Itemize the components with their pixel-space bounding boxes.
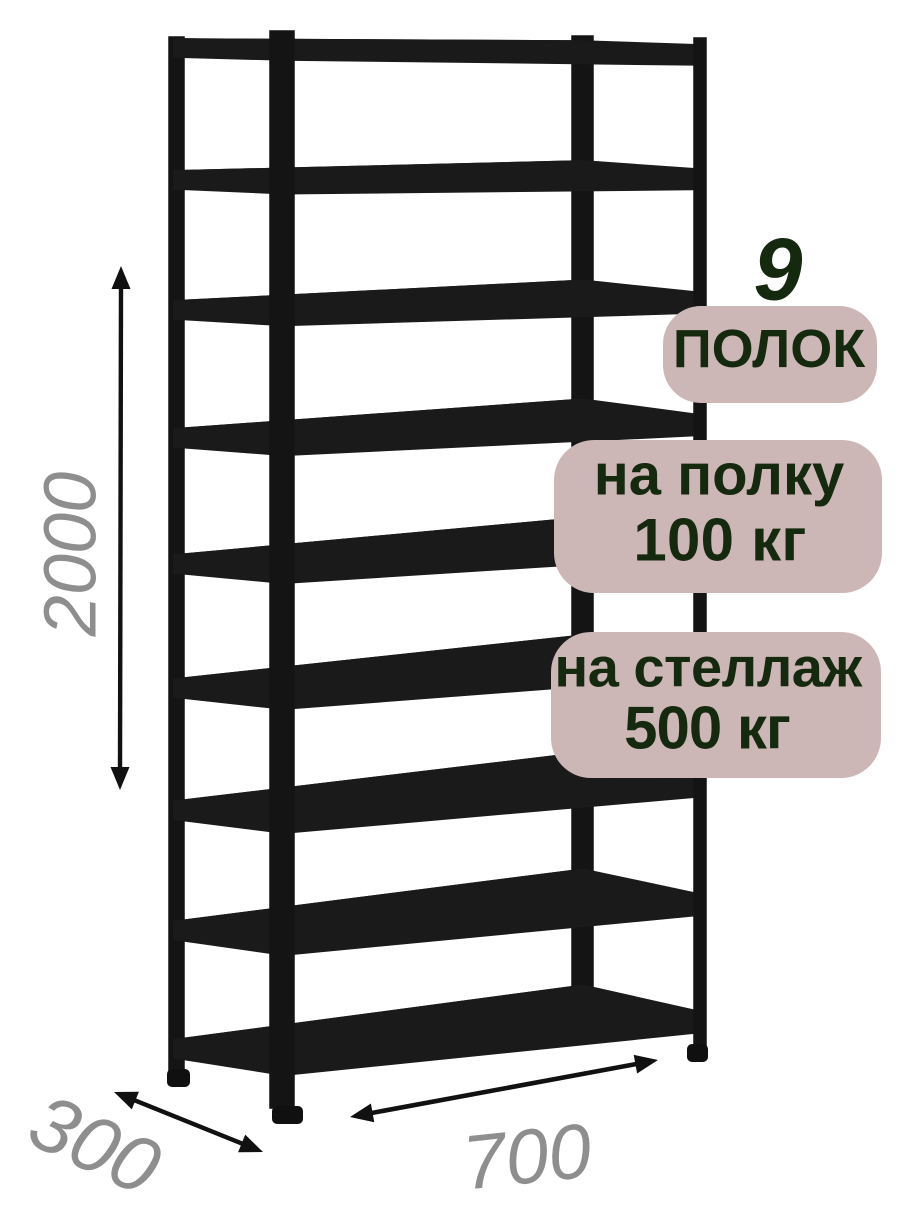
svg-text:500 кг: 500 кг <box>624 695 790 762</box>
svg-text:300: 300 <box>16 1076 173 1200</box>
svg-text:2000: 2000 <box>29 472 112 638</box>
svg-text:700: 700 <box>459 1108 596 1200</box>
svg-text:на полку: на полку <box>594 443 845 508</box>
svg-text:9: 9 <box>754 220 803 319</box>
svg-text:100 кг: 100 кг <box>633 507 806 574</box>
svg-text:на стеллаж: на стеллаж <box>554 636 863 699</box>
svg-text:ПОЛОК: ПОЛОК <box>673 319 866 379</box>
